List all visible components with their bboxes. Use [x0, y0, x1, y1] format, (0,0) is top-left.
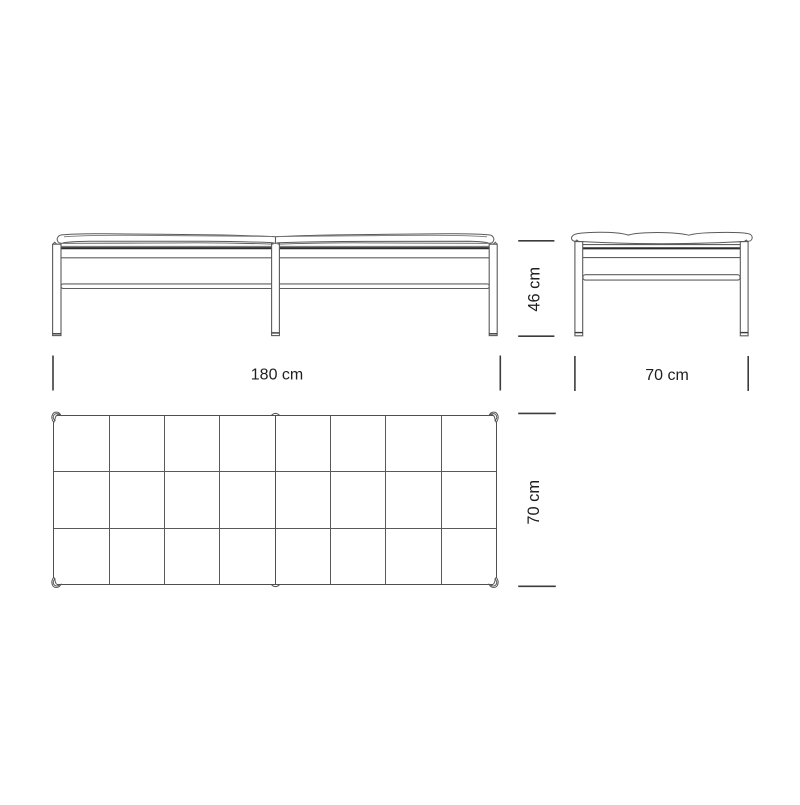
svg-text:70 cm: 70 cm: [645, 367, 689, 384]
svg-text:70 cm: 70 cm: [525, 480, 543, 525]
svg-text:46 cm: 46 cm: [526, 267, 544, 312]
svg-text:180 cm: 180 cm: [251, 366, 303, 383]
